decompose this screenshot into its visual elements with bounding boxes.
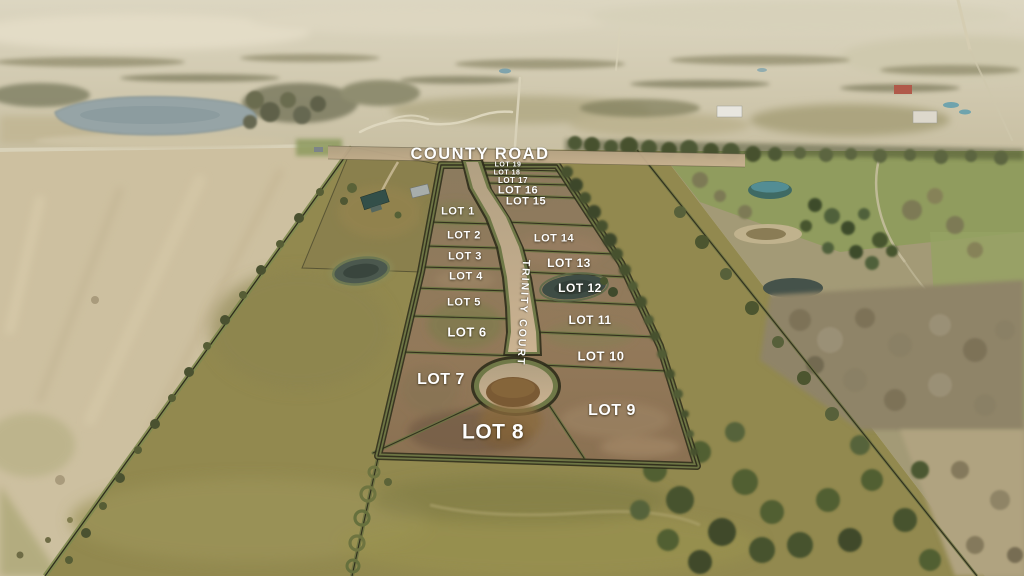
distant-pond bbox=[757, 68, 767, 72]
lot-label-2: LOT 2 bbox=[447, 231, 481, 242]
lot-label-5: LOT 5 bbox=[447, 298, 481, 309]
lot-label-12: LOT 12 bbox=[558, 282, 602, 294]
distant-pond bbox=[499, 69, 511, 74]
lot-label-11: LOT 11 bbox=[568, 314, 611, 326]
lot-label-3: LOT 3 bbox=[448, 252, 482, 263]
lot-label-14: LOT 14 bbox=[534, 234, 574, 245]
lot-label-16: LOT 16 bbox=[498, 186, 538, 197]
lot-label-9: LOT 9 bbox=[588, 403, 636, 419]
aerial-plat-photo: COUNTY ROAD TRINITY COURT LOT 1 LOT 2 LO… bbox=[0, 0, 1024, 576]
lot-label-10: LOT 10 bbox=[577, 350, 624, 363]
lot-label-8: LOT 8 bbox=[462, 422, 524, 443]
lot-label-7: LOT 7 bbox=[417, 372, 465, 388]
lot-label-1: LOT 1 bbox=[441, 207, 475, 218]
distant-landscape bbox=[0, 0, 1024, 161]
lot-label-4: LOT 4 bbox=[449, 272, 483, 283]
lot-label-13: LOT 13 bbox=[547, 257, 591, 269]
lot-label-18: LOT 18 bbox=[494, 170, 521, 177]
lot-label-17: LOT 17 bbox=[498, 177, 528, 185]
county-road-label: COUNTY ROAD bbox=[410, 146, 549, 163]
lot-label-6: LOT 6 bbox=[447, 326, 486, 339]
aerial-photo-canvas bbox=[0, 0, 1024, 576]
lot-label-15: LOT 15 bbox=[506, 197, 546, 208]
lot-label-19: LOT 19 bbox=[495, 162, 522, 169]
